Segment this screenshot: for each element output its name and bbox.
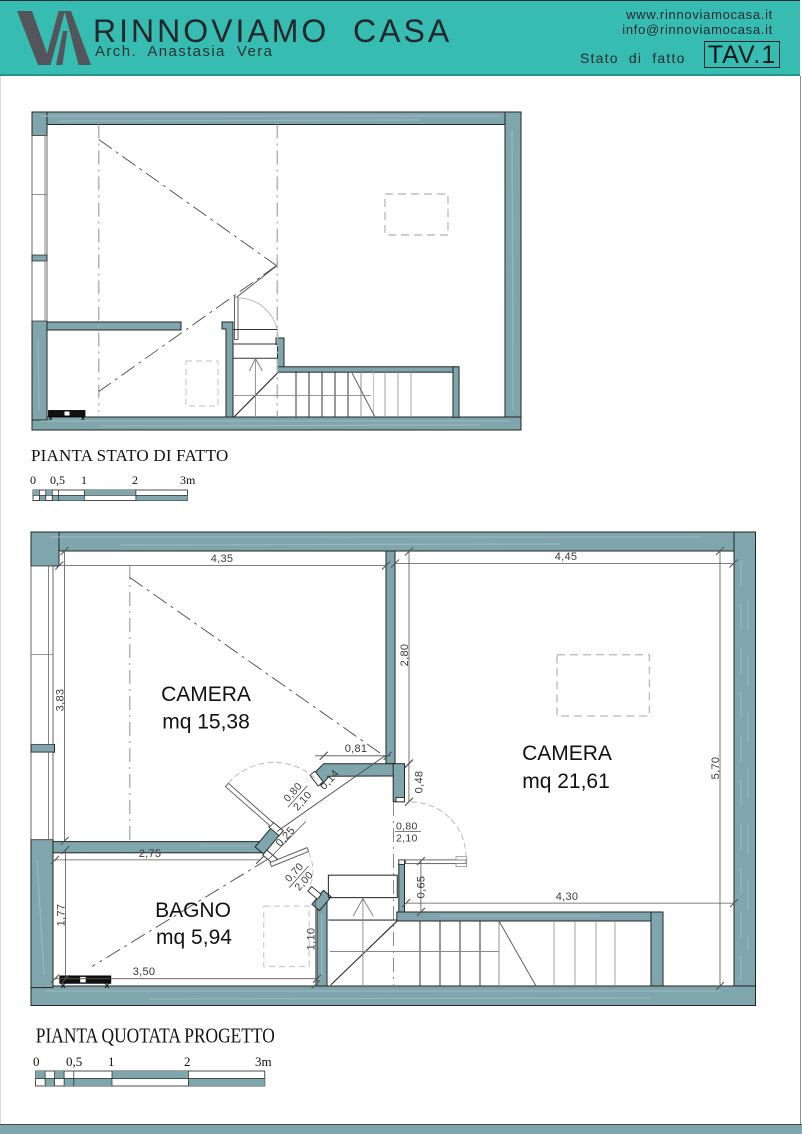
svg-text:0,48: 0,48 xyxy=(414,771,426,794)
svg-text:4,30: 4,30 xyxy=(556,891,579,903)
svg-text:1,10: 1,10 xyxy=(306,928,318,951)
svg-text:0: 0 xyxy=(30,473,36,487)
svg-text:0,81: 0,81 xyxy=(345,743,368,755)
svg-text:1: 1 xyxy=(81,473,87,487)
svg-text:2: 2 xyxy=(184,1054,191,1069)
svg-text:PIANTA STATO DI FATTO: PIANTA STATO DI FATTO xyxy=(31,446,228,465)
svg-text:mq 15,38: mq 15,38 xyxy=(162,711,250,734)
svg-text:3m: 3m xyxy=(255,1054,272,1069)
svg-text:3,83: 3,83 xyxy=(55,689,67,712)
svg-text:4,45: 4,45 xyxy=(555,551,578,563)
svg-text:mq 21,61: mq 21,61 xyxy=(522,770,610,793)
svg-text:4,35: 4,35 xyxy=(211,553,234,565)
svg-text:2,10: 2,10 xyxy=(396,833,418,845)
svg-text:2,80: 2,80 xyxy=(399,644,411,667)
svg-text:3m: 3m xyxy=(180,473,196,487)
svg-text:0: 0 xyxy=(33,1054,40,1069)
svg-text:0,80: 0,80 xyxy=(396,821,418,833)
svg-text:0,5: 0,5 xyxy=(66,1054,82,1069)
svg-text:2,75: 2,75 xyxy=(139,848,162,860)
svg-text:mq 5,94: mq 5,94 xyxy=(156,926,232,949)
svg-text:CAMERA: CAMERA xyxy=(522,742,612,765)
svg-text:BAGNO: BAGNO xyxy=(155,899,231,922)
svg-text:2: 2 xyxy=(132,473,138,487)
svg-text:3,50: 3,50 xyxy=(133,966,156,978)
svg-text:5,70: 5,70 xyxy=(710,757,722,780)
svg-text:PIANTA QUOTATA PROGETTO: PIANTA QUOTATA PROGETTO xyxy=(36,1024,275,1048)
svg-text:CAMERA: CAMERA xyxy=(161,683,251,706)
svg-text:1,77: 1,77 xyxy=(56,904,68,927)
svg-text:1: 1 xyxy=(108,1054,115,1069)
svg-text:0,65: 0,65 xyxy=(416,876,428,899)
svg-text:0,5: 0,5 xyxy=(50,473,65,487)
